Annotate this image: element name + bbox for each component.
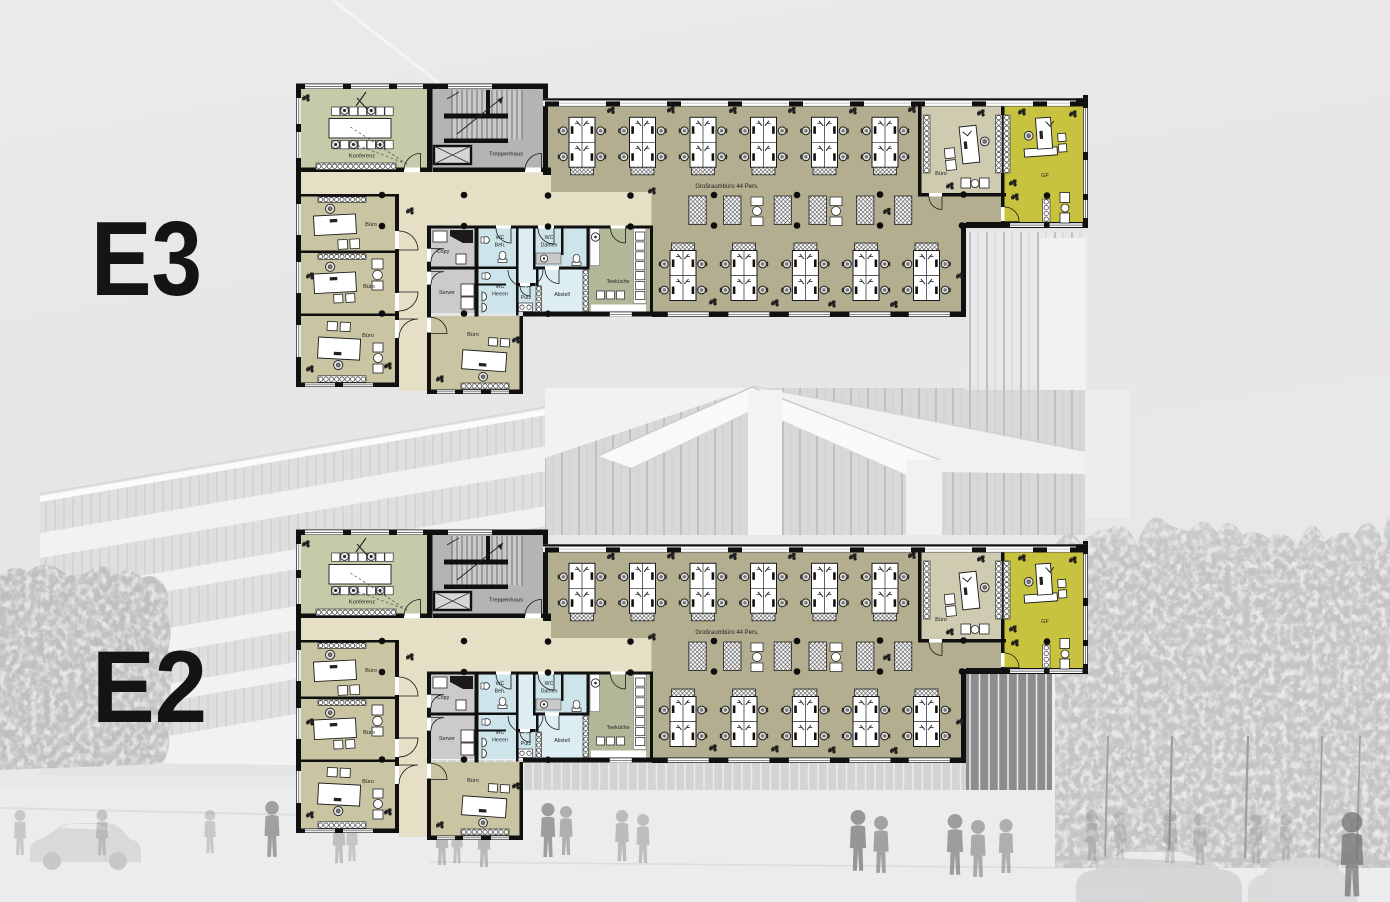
svg-text:Treppenhaus: Treppenhaus (489, 152, 523, 158)
svg-text:Putz: Putz (521, 295, 532, 301)
svg-text:Großraumbüro 44 Pers.: Großraumbüro 44 Pers. (695, 184, 759, 190)
svg-text:WC: WC (496, 284, 505, 290)
svg-text:E3: E3 (91, 200, 202, 318)
svg-text:Büro: Büro (365, 222, 377, 228)
svg-text:Büro: Büro (935, 171, 947, 177)
svg-text:WC: WC (496, 235, 505, 241)
svg-text:Büro: Büro (362, 333, 374, 339)
svg-text:Server: Server (439, 290, 455, 296)
svg-text:Konferenz: Konferenz (349, 154, 376, 160)
svg-text:GF: GF (1041, 173, 1049, 179)
svg-text:Herren: Herren (492, 292, 508, 298)
svg-text:E2: E2 (92, 630, 207, 744)
svg-text:WC: WC (545, 235, 554, 241)
svg-text:Büro: Büro (467, 332, 479, 338)
svg-text:Teeküche: Teeküche (606, 279, 629, 285)
svg-text:Abstell: Abstell (554, 292, 570, 298)
svg-text:Beh.: Beh. (495, 243, 506, 249)
svg-text:Büro: Büro (363, 284, 375, 290)
svg-text:Damen: Damen (541, 243, 558, 249)
svg-text:Copy: Copy (437, 249, 450, 255)
